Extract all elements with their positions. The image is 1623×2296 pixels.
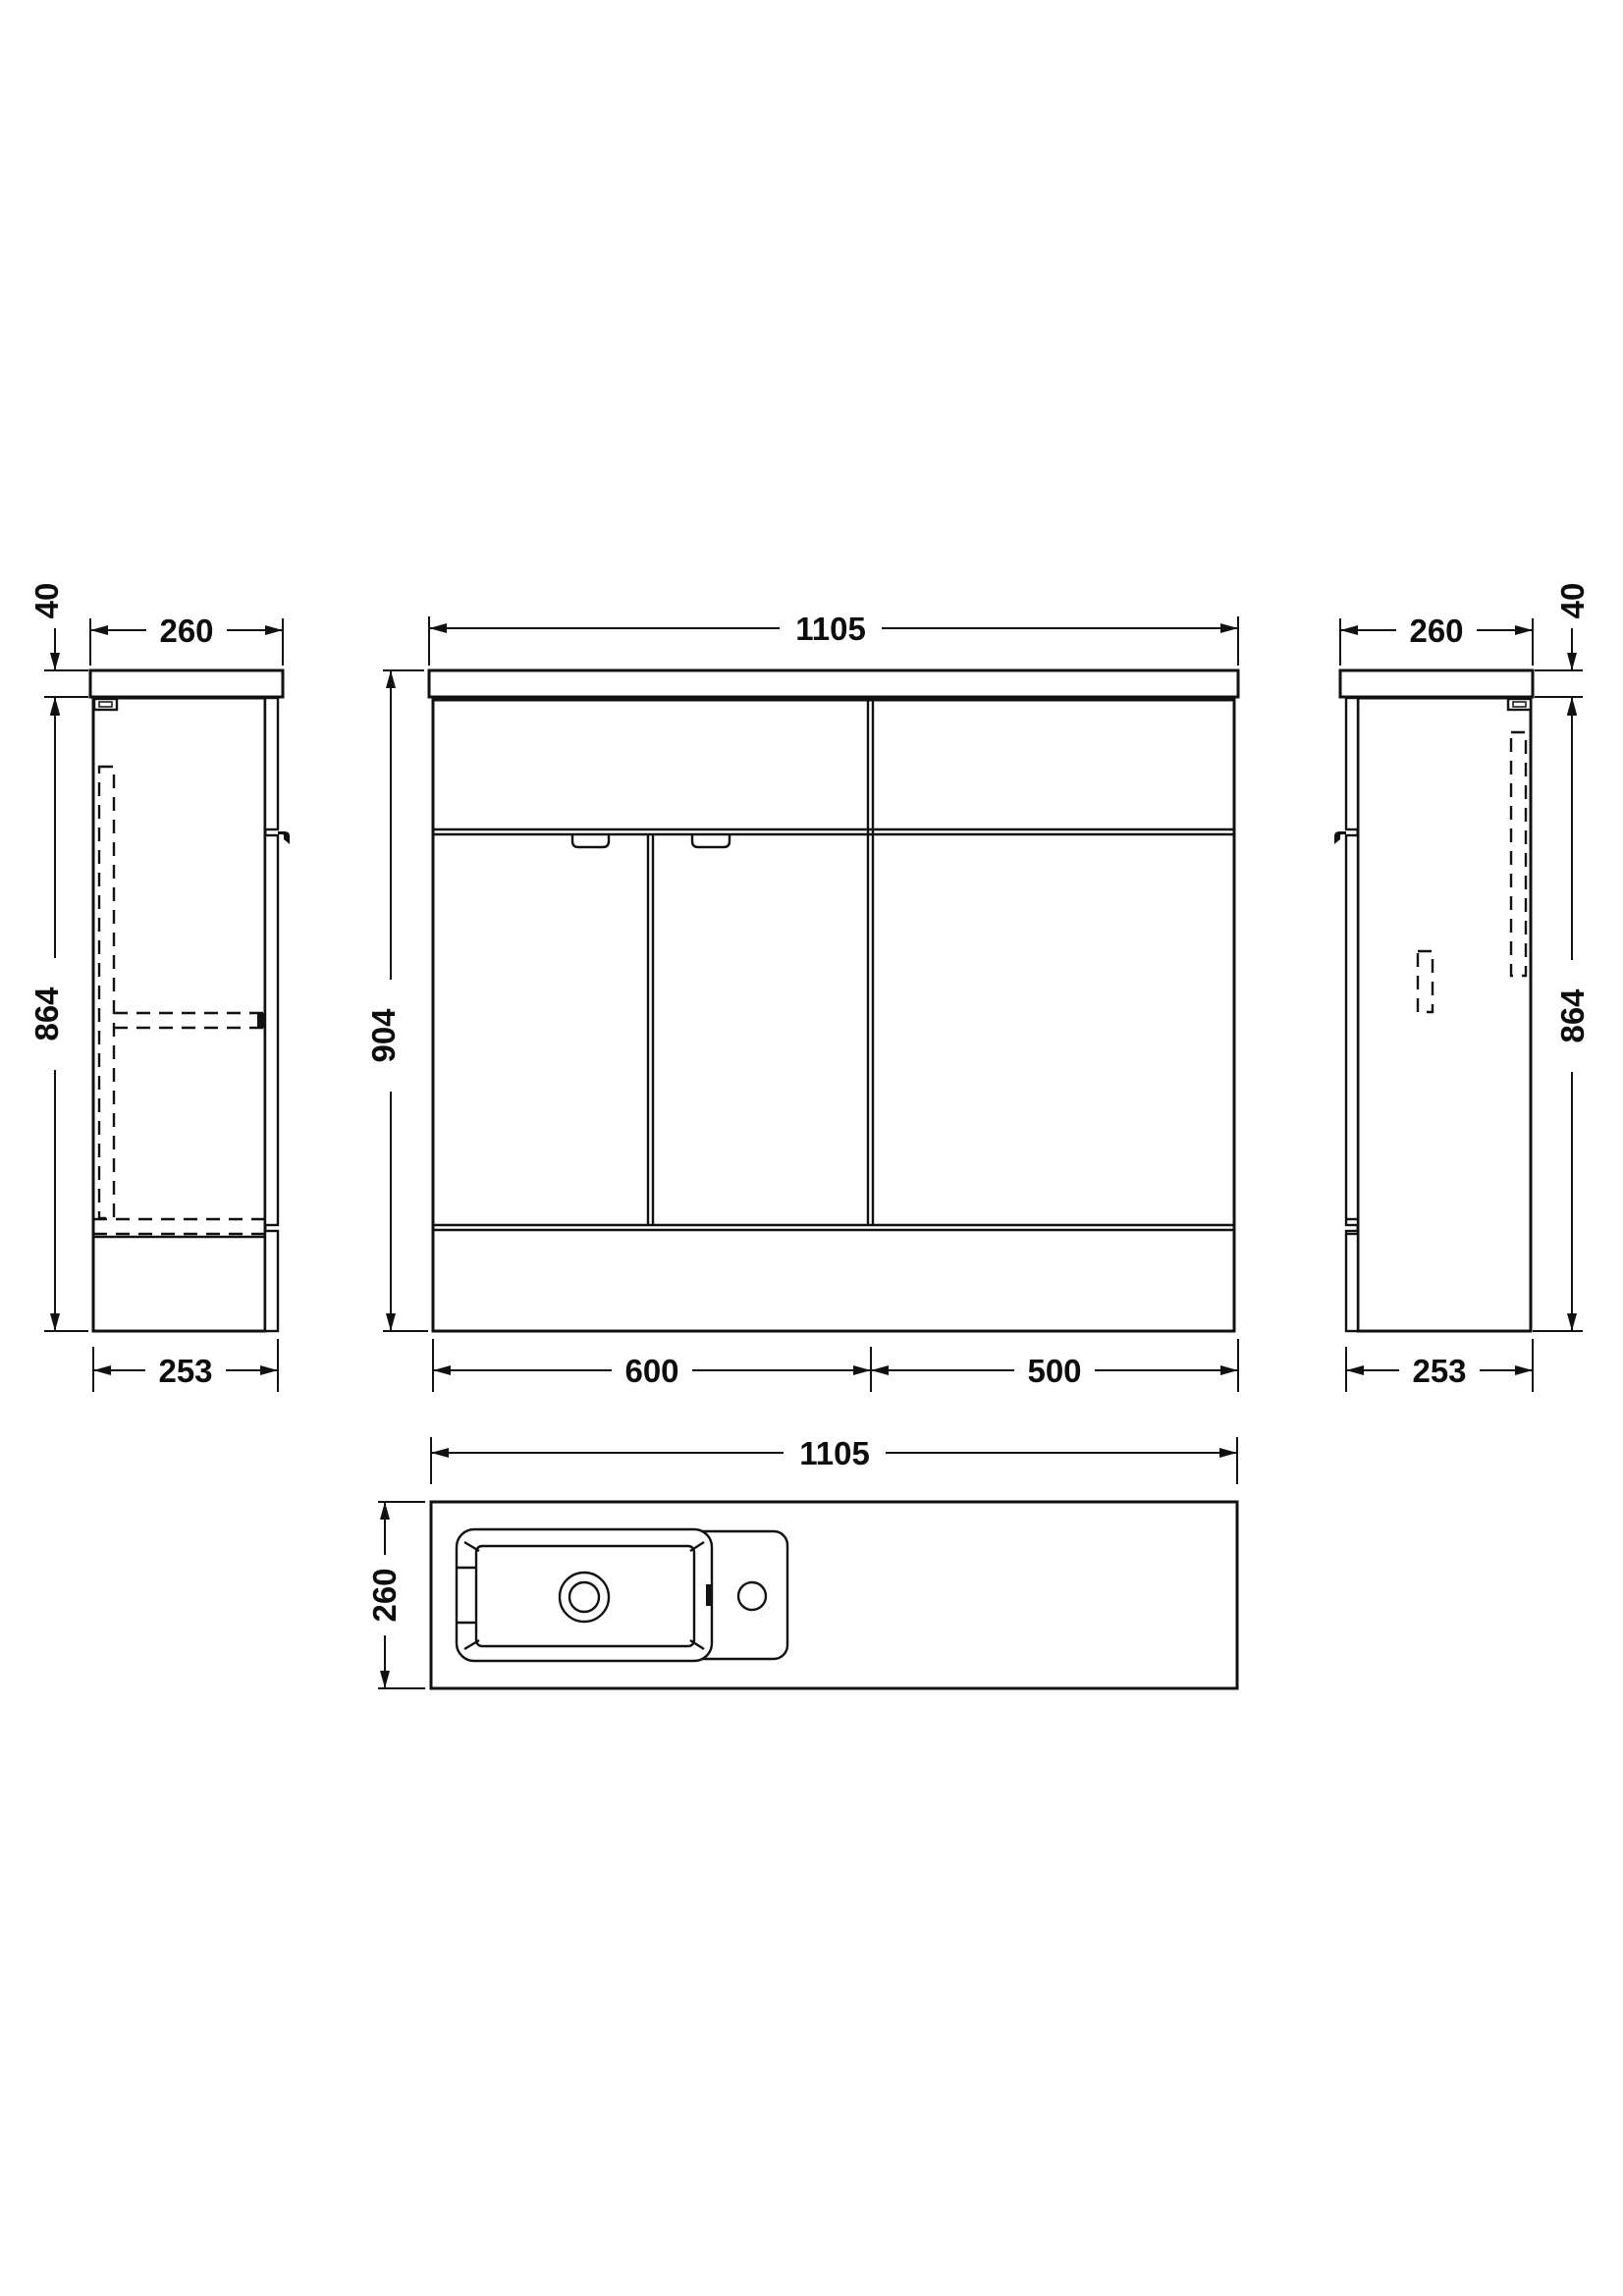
right-view-countertop bbox=[1340, 670, 1533, 697]
dim-label-right-864: 864 bbox=[1554, 988, 1591, 1043]
dim-label-right-253: 253 bbox=[1412, 1353, 1466, 1389]
dim-label-right-40: 40 bbox=[1554, 583, 1591, 619]
plan-view-overflow-slot bbox=[706, 1584, 712, 1606]
left-view-wall-clip bbox=[94, 699, 117, 710]
dim-label-right-260: 260 bbox=[1409, 613, 1463, 649]
dim-label-front-904: 904 bbox=[365, 1008, 402, 1063]
drawing-page: 40 864 260 bbox=[0, 0, 1623, 2296]
front-view-body bbox=[433, 700, 1234, 1331]
left-view-front-plinth bbox=[265, 1231, 278, 1331]
dim-label-front-600: 600 bbox=[624, 1353, 678, 1389]
right-view-front-door bbox=[1346, 835, 1358, 1225]
front-view: 1105 904 600 bbox=[365, 611, 1238, 1392]
left-view-front-door bbox=[265, 835, 278, 1225]
dim-label-front-1105: 1105 bbox=[795, 611, 866, 647]
right-view-cabinet-body bbox=[1358, 698, 1531, 1331]
right-view-wall-clip bbox=[1508, 699, 1531, 710]
left-view-shelf-fixing bbox=[257, 1013, 265, 1028]
dim-label-plan-1105: 1105 bbox=[799, 1435, 870, 1471]
right-view-front-panel-upper bbox=[1346, 698, 1358, 829]
dim-label-left-253: 253 bbox=[158, 1353, 212, 1389]
technical-drawing-canvas: 40 864 260 bbox=[0, 0, 1623, 2296]
dim-label-left-864: 864 bbox=[28, 987, 65, 1041]
left-view-front-panel-upper bbox=[265, 698, 278, 829]
plan-view-basin-outer-rim bbox=[457, 1529, 712, 1661]
dim-label-plan-260: 260 bbox=[366, 1568, 403, 1622]
dim-label-left-260: 260 bbox=[159, 613, 213, 649]
front-view-countertop bbox=[429, 670, 1238, 697]
left-view-countertop bbox=[90, 670, 283, 697]
dim-label-left-40: 40 bbox=[28, 583, 65, 619]
right-view-front-plinth bbox=[1346, 1231, 1358, 1331]
dim-label-front-500: 500 bbox=[1027, 1353, 1081, 1389]
